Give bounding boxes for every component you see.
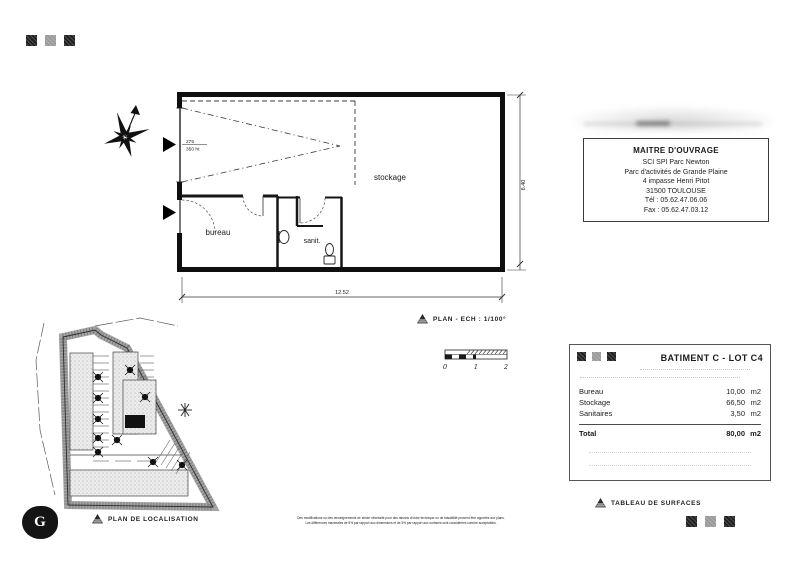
door-dimension-note: 275 350 ht	[182, 139, 207, 153]
architect-logo-letter: G	[34, 514, 46, 531]
stamp-icon	[45, 35, 56, 46]
stamp-icon	[686, 516, 697, 527]
room-label-sanit: sanit.	[304, 238, 321, 245]
table-total-separator	[579, 424, 761, 425]
site-building	[70, 353, 93, 450]
svg-text:275: 275	[186, 139, 194, 145]
entrance-arrow-icon	[163, 205, 176, 220]
disclaimer-line: Les différences maximales de 5% par rapp…	[268, 521, 534, 526]
entrance-arrow-icon	[163, 137, 176, 152]
owner-box-line: Fax : 05.62.47.03.12	[584, 206, 768, 216]
triangle-logo-icon	[595, 498, 606, 508]
surface-table-title: BATIMENT C - LOT C4	[661, 353, 763, 363]
stamp-group-top-left	[26, 35, 75, 46]
toilet-icon	[324, 244, 335, 265]
plan-caption: PLAN - ECH : 1/100°	[417, 314, 506, 324]
stamp-icon	[577, 352, 586, 361]
owner-info-box: MAITRE D'OUVRAGE SCI SPI Parc Newton Par…	[583, 138, 769, 222]
stamp-icon	[724, 516, 735, 527]
scanned-plan-sheet: stockage bureau sanit. 275 350 ht 12.52 …	[0, 0, 799, 565]
stamp-group-bottom-right	[686, 516, 735, 527]
svg-text:350 ht: 350 ht	[186, 147, 200, 153]
highlighted-lot	[125, 415, 145, 428]
surface-table-caption-label: TABLEAU DE SURFACES	[611, 500, 701, 507]
table-total-row: Total 80,00 m2	[579, 429, 761, 440]
site-plan-drawing	[30, 316, 270, 518]
washbasin-icon	[279, 231, 289, 244]
sectional-door	[177, 101, 356, 185]
surface-table-header: BATIMENT C - LOT C4	[570, 345, 770, 369]
dimension-width-label: 12.52	[335, 290, 349, 296]
localisation-caption: PLAN DE LOCALISATION	[92, 514, 199, 524]
owner-box-line: Tél : 05.62.47.06.06	[584, 196, 768, 206]
plan-caption-label: PLAN - ECH : 1/100°	[433, 316, 506, 323]
room-label-stockage: stockage	[374, 173, 407, 182]
localisation-caption-label: PLAN DE LOCALISATION	[108, 516, 199, 523]
triangle-logo-icon	[417, 314, 428, 324]
table-row: Bureau 10,00 m2	[579, 387, 761, 398]
scale-tick-1: 1	[474, 363, 478, 371]
owner-box-title: MAITRE D'OUVRAGE	[584, 146, 768, 155]
triangle-logo-icon	[92, 514, 103, 524]
stamp-icon	[607, 352, 616, 361]
room-label-bureau: bureau	[206, 228, 231, 237]
star-marker-icon	[178, 403, 192, 417]
owner-box-line: 31500 TOULOUSE	[584, 187, 768, 197]
surface-table: BATIMENT C - LOT C4 Bureau 10,00 m2 Stoc…	[569, 344, 771, 481]
site-building	[70, 470, 188, 496]
architect-logo: G	[22, 506, 58, 539]
compass-north-icon	[95, 100, 160, 170]
scale-bar: 0 1 2	[443, 347, 513, 373]
scale-tick-2: 2	[503, 363, 508, 371]
owner-box-line: SCI SPI Parc Newton	[584, 158, 768, 168]
stamp-icon	[592, 352, 601, 361]
scale-tick-0: 0	[443, 363, 447, 371]
stamp-icon	[64, 35, 75, 46]
stamp-icon	[705, 516, 716, 527]
table-row: Stockage 66,50 m2	[579, 398, 761, 409]
stamp-icon	[26, 35, 37, 46]
disclaimer-text: Des modifications ou des renseignements …	[268, 516, 534, 526]
dimension-height-label: 6.40	[521, 180, 527, 191]
owner-box-line: 4 impasse Henri Pitot	[584, 177, 768, 187]
scan-smudge-artifact	[574, 106, 772, 132]
surface-table-caption: TABLEAU DE SURFACES	[595, 498, 701, 508]
interior-doors	[243, 196, 325, 223]
owner-box-line: Parc d'activités de Grande Plaine	[584, 168, 768, 178]
table-row: Sanitaires 3,50 m2	[579, 409, 761, 420]
